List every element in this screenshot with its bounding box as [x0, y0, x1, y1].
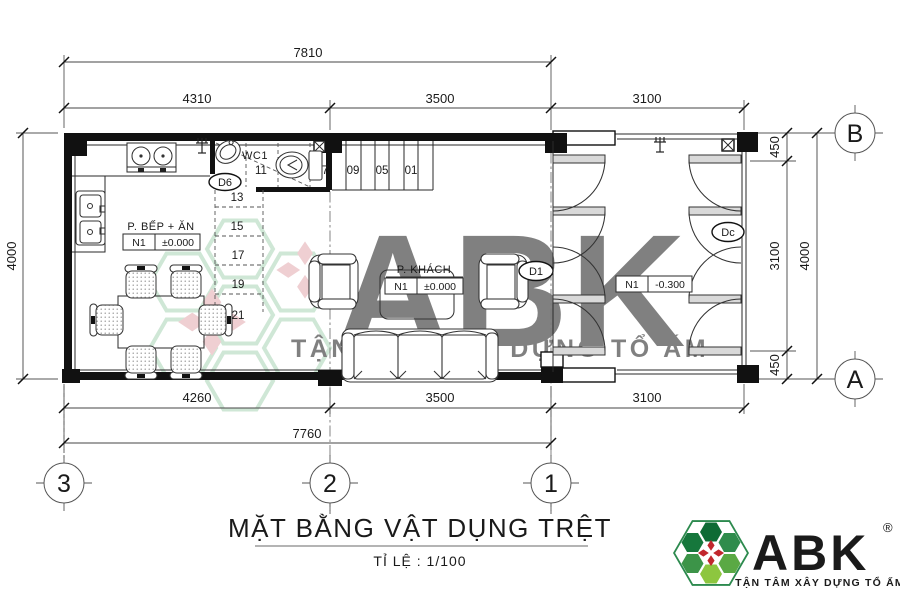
column	[62, 369, 80, 383]
column	[737, 132, 758, 152]
dimensions-left: 4000	[4, 128, 58, 384]
armchair	[479, 254, 528, 309]
title-block: MẶT BẰNG VẬT DỤNG TRỆT TỈ LỆ : 1/100	[228, 503, 612, 569]
porch-level-tag: N1 -0.300	[616, 276, 692, 292]
dining-table-set	[90, 265, 232, 379]
stair-tread-label: 19	[232, 279, 245, 291]
door-d1-label: D1	[519, 262, 553, 281]
svg-text:Dc: Dc	[721, 227, 735, 239]
plan-title: MẶT BẰNG VẬT DỤNG TRỆT	[228, 513, 612, 543]
electrical-box-icon	[722, 139, 734, 151]
abk-slogan: TẬN TÂM XÂY DỰNG TỔ ẤM	[735, 576, 900, 589]
dim-right-3: 450	[767, 354, 782, 376]
living-label: P. KHÁCH	[397, 263, 452, 276]
door-d6-label: D6	[209, 174, 241, 191]
stair-tread-label: 15	[231, 221, 244, 233]
stair-tread-label: 13	[231, 192, 244, 204]
dim-top-3: 3100	[633, 91, 662, 106]
armchair	[309, 254, 358, 309]
dimensions-right: 450 3100 450 4000	[750, 128, 833, 384]
grid-bubble-A: A	[847, 366, 864, 394]
svg-text:N1: N1	[132, 237, 146, 249]
dim-bottom-1: 4260	[183, 390, 212, 405]
wc-label: WC1	[242, 150, 268, 162]
dim-right-total: 4000	[797, 242, 812, 271]
column	[737, 365, 759, 383]
svg-text:D6: D6	[218, 177, 232, 189]
dim-bottom-total: 7760	[293, 426, 322, 441]
svg-text:N1: N1	[394, 281, 408, 293]
toilet-icon	[276, 151, 322, 180]
abk-logo: ABK ® TẬN TÂM XÂY DỰNG TỔ ẤM	[674, 520, 900, 589]
kitchen-level-tag: N1 ±0.000	[123, 234, 200, 250]
wc-area: WC1 D6	[209, 136, 322, 191]
column	[541, 367, 563, 383]
dining-chair	[170, 346, 202, 379]
grid-bubble-1: 1	[544, 470, 558, 498]
dim-right-2: 3100	[767, 242, 782, 271]
stair-tread-label: 01	[405, 165, 418, 177]
dining-chair	[125, 346, 157, 379]
grid-bubble-B: B	[847, 120, 864, 148]
electrical-box-icon	[314, 141, 325, 152]
kitchen-sink-icon	[76, 191, 105, 245]
living-level-tag: N1 ±0.000	[385, 278, 463, 294]
grid-bubble-2: 2	[323, 470, 337, 498]
stair-tread-label: 05	[376, 165, 389, 177]
dim-right-1: 450	[767, 136, 782, 158]
dining-chair	[125, 265, 157, 298]
column	[64, 133, 87, 156]
dim-bottom-2: 3500	[426, 390, 455, 405]
column	[545, 133, 567, 153]
dim-left-total: 4000	[4, 242, 19, 271]
scale-label: TỈ LỆ : 1/100	[373, 553, 466, 569]
stair-tread-label: 11	[255, 165, 267, 177]
stair-tread-label: 17	[232, 250, 245, 262]
svg-text:±0.000: ±0.000	[424, 281, 456, 293]
column	[318, 370, 342, 386]
dim-top-2: 3500	[426, 91, 455, 106]
stair-tread-label: 21	[232, 310, 245, 322]
grid-bubble-3: 3	[57, 470, 71, 498]
svg-text:N1: N1	[625, 279, 639, 291]
door-dc-label: Dc	[712, 223, 744, 242]
floor-plan-drawing: ABK TẬN TÂM XÂY DỰNG TỔ ẤM 7810 4310 350…	[0, 0, 900, 598]
sofa	[342, 329, 498, 382]
dining-chair	[90, 304, 123, 336]
kitchen-label: P. BẾP + ĂN	[127, 220, 194, 233]
dimensions-bottom: 4260 3500 3100 7760	[59, 384, 749, 450]
abk-registered-mark: ®	[883, 520, 893, 535]
abk-logo-text: ABK	[752, 525, 869, 581]
svg-text:-0.300: -0.300	[655, 279, 685, 291]
folding-door-dc	[689, 155, 741, 355]
stair-tread-label: 09	[347, 165, 360, 177]
svg-text:±0.000: ±0.000	[162, 237, 194, 249]
dim-top-1: 4310	[183, 91, 212, 106]
dining-chair	[170, 265, 202, 298]
vent-symbol-icon	[654, 137, 666, 152]
floor-plan-sheet: ABK TẬN TÂM XÂY DỰNG TỔ ẤM 7810 4310 350…	[0, 0, 900, 598]
stove-icon	[127, 143, 176, 172]
dim-top-total: 7810	[294, 45, 323, 60]
abk-logo-mark	[674, 521, 748, 585]
dim-bottom-3: 3100	[633, 390, 662, 405]
svg-text:D1: D1	[529, 266, 543, 278]
dimensions-top: 7810 4310 3500 3100	[59, 45, 749, 130]
dining-chair	[199, 304, 232, 336]
